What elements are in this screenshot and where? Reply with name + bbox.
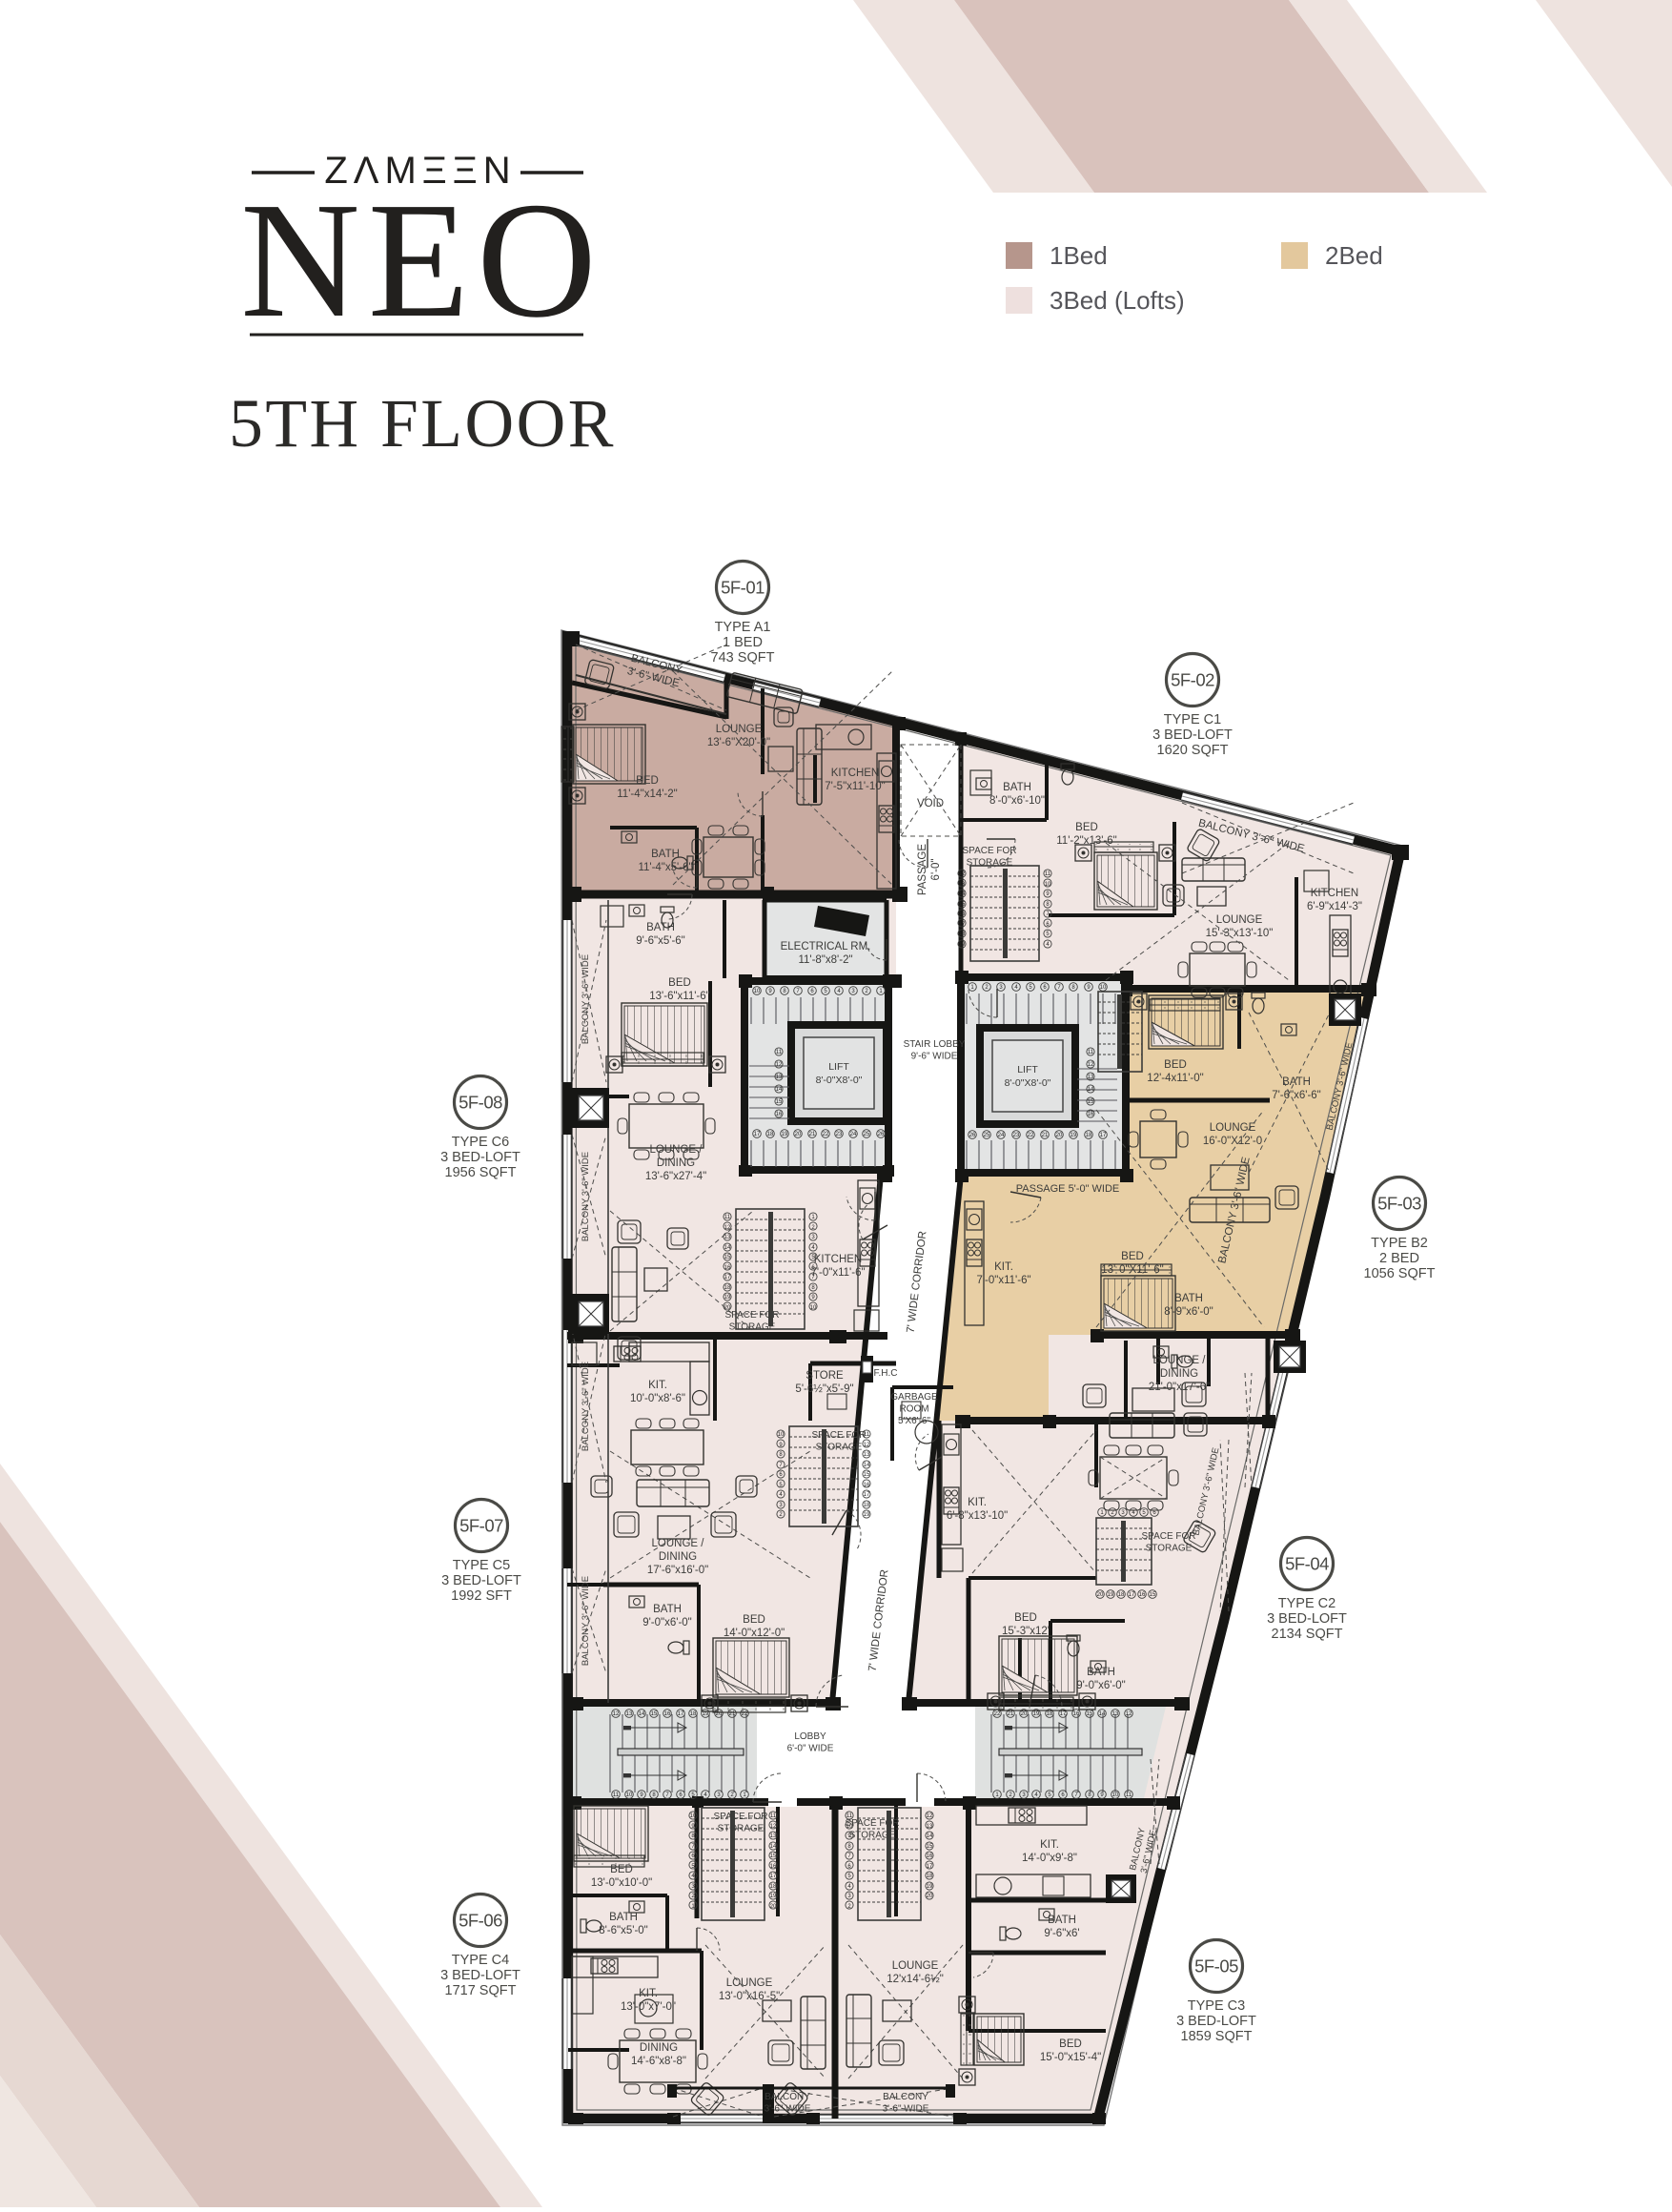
svg-text:3 BED-LOFT: 3 BED-LOFT [1176, 2014, 1256, 2029]
svg-text:8'-0"x6'-10": 8'-0"x6'-10" [989, 795, 1045, 807]
svg-text:15'-3"x13'-10": 15'-3"x13'-10" [1206, 928, 1274, 939]
svg-text:11: 11 [1045, 871, 1051, 877]
svg-text:7'-6"x6'-6": 7'-6"x6'-6" [1272, 1090, 1321, 1101]
svg-text:10: 10 [626, 1792, 633, 1798]
svg-text:24: 24 [850, 1132, 857, 1137]
svg-text:TYPE C6: TYPE C6 [452, 1135, 509, 1150]
svg-text:DINING: DINING [659, 1551, 697, 1563]
svg-text:13: 13 [1112, 1711, 1119, 1717]
svg-text:16: 16 [776, 1112, 783, 1117]
svg-text:16: 16 [959, 911, 966, 917]
svg-text:6'-0": 6'-0" [930, 859, 942, 881]
svg-text:LOUNGE: LOUNGE [892, 1960, 939, 1972]
svg-text:15'-3"x12': 15'-3"x12' [1002, 1626, 1050, 1637]
svg-text:10: 10 [1100, 985, 1107, 991]
svg-text:17: 17 [1100, 1133, 1107, 1138]
svg-text:5F-04: 5F-04 [1285, 1554, 1329, 1574]
svg-text:BALCONY 3'-6" WIDE: BALCONY 3'-6" WIDE [581, 1576, 591, 1666]
svg-text:BED: BED [610, 1864, 633, 1875]
svg-text:12: 12 [770, 1824, 777, 1830]
svg-text:5F-05: 5F-05 [1194, 1956, 1238, 1976]
svg-text:KIT.: KIT. [648, 1380, 667, 1391]
svg-text:9'-6"x5'-6": 9'-6"x5'-6" [636, 935, 685, 947]
svg-text:17: 17 [678, 1711, 684, 1717]
svg-text:14'-6"x8'-8": 14'-6"x8'-8" [631, 2056, 686, 2067]
svg-text:3 BED-LOFT: 3 BED-LOFT [441, 1573, 521, 1588]
svg-text:STORAGE: STORAGE [1146, 1544, 1193, 1554]
svg-text:14: 14 [776, 1087, 783, 1093]
svg-text:25: 25 [984, 1133, 990, 1138]
svg-text:9'-6" WIDE: 9'-6" WIDE [911, 1052, 958, 1062]
svg-text:6'-0" WIDE: 6'-0" WIDE [787, 1744, 834, 1754]
svg-text:21: 21 [1042, 1133, 1049, 1138]
svg-text:BED: BED [1121, 1251, 1144, 1262]
svg-text:14: 14 [1099, 1711, 1106, 1717]
svg-text:18: 18 [724, 1285, 731, 1291]
svg-text:BATH: BATH [1087, 1667, 1115, 1678]
svg-text:15: 15 [1087, 1711, 1093, 1717]
svg-text:8'-0"X8'-0": 8'-0"X8'-0" [816, 1075, 863, 1086]
svg-text:PASSAGE: PASSAGE [917, 844, 928, 895]
svg-text:22: 22 [823, 1132, 829, 1137]
svg-text:12: 12 [1088, 1062, 1094, 1068]
svg-text:13: 13 [626, 1711, 633, 1717]
svg-text:14: 14 [927, 1833, 933, 1839]
svg-text:DINING: DINING [640, 2042, 678, 2054]
svg-text:10: 10 [810, 1305, 817, 1311]
svg-text:BALCONY 3'-6" WIDE: BALCONY 3'-6" WIDE [581, 1152, 591, 1241]
svg-text:KIT.: KIT. [639, 1988, 658, 1999]
svg-text:16: 16 [1073, 1711, 1080, 1717]
svg-text:TYPE C1: TYPE C1 [1164, 712, 1221, 727]
svg-text:13'-0"x10'-0": 13'-0"x10'-0" [591, 1877, 652, 1889]
svg-text:20: 20 [770, 1904, 777, 1910]
svg-text:3 BED-LOFT: 3 BED-LOFT [1267, 1611, 1347, 1627]
svg-text:12: 12 [613, 1711, 620, 1717]
svg-text:15: 15 [651, 1711, 658, 1717]
svg-text:BALCONY: BALCONY [765, 2092, 810, 2102]
svg-text:12: 12 [959, 871, 966, 877]
svg-text:17: 17 [1129, 1592, 1135, 1598]
svg-text:DINING: DINING [1160, 1368, 1198, 1380]
svg-text:18: 18 [927, 1874, 933, 1879]
svg-text:14: 14 [639, 1711, 645, 1717]
svg-text:KITCHEN: KITCHEN [831, 768, 879, 779]
svg-text:5'X6'-6": 5'X6'-6" [898, 1416, 931, 1426]
svg-text:13: 13 [864, 1452, 870, 1458]
svg-text:BED: BED [1075, 822, 1098, 833]
svg-text:STAIR LOBBY: STAIR LOBBY [904, 1039, 966, 1050]
svg-text:5F-01: 5F-01 [721, 578, 765, 598]
svg-text:16'-0"X12'-0: 16'-0"X12'-0 [1203, 1136, 1262, 1147]
svg-text:13'-6"x11'-6": 13'-6"x11'-6" [649, 991, 710, 1002]
svg-text:19: 19 [864, 1512, 870, 1518]
svg-text:1992 SFT: 1992 SFT [451, 1588, 512, 1604]
svg-text:15: 15 [927, 1844, 933, 1850]
svg-text:1717 SQFT: 1717 SQFT [445, 1983, 517, 1998]
svg-text:15: 15 [864, 1472, 870, 1478]
svg-text:15'-0"x15'-4": 15'-0"x15'-4" [1040, 2052, 1101, 2063]
svg-text:LOUNGE: LOUNGE [1216, 914, 1263, 926]
svg-text:16: 16 [864, 1483, 870, 1488]
svg-text:11: 11 [613, 1792, 620, 1798]
svg-text:20: 20 [795, 1132, 802, 1137]
svg-text:BATH: BATH [646, 922, 675, 933]
svg-text:7'-5"x11'-10": 7'-5"x11'-10" [825, 781, 886, 792]
svg-text:10: 10 [754, 989, 761, 994]
svg-text:14: 14 [724, 1245, 731, 1251]
svg-text:19: 19 [703, 1711, 709, 1717]
svg-text:2 BED: 2 BED [1379, 1251, 1419, 1266]
svg-text:11: 11 [770, 1813, 777, 1819]
svg-text:17: 17 [1060, 1711, 1067, 1717]
svg-text:18: 18 [959, 932, 966, 937]
svg-text:15: 15 [959, 902, 966, 908]
svg-text:LOUNGE /: LOUNGE / [1153, 1355, 1207, 1366]
svg-text:9'-6"x6': 9'-6"x6' [1044, 1928, 1079, 1939]
svg-text:KIT.: KIT. [994, 1261, 1013, 1273]
svg-text:11'-4"x14'-2": 11'-4"x14'-2" [617, 789, 678, 800]
svg-text:NEO: NEO [240, 168, 604, 352]
svg-text:23: 23 [836, 1132, 843, 1137]
svg-text:17: 17 [959, 922, 966, 928]
svg-text:3 BED-LOFT: 3 BED-LOFT [440, 1150, 520, 1165]
svg-text:LOUNGE /: LOUNGE / [652, 1538, 705, 1549]
svg-text:7'-0"x11'-6": 7'-0"x11'-6" [976, 1275, 1030, 1286]
svg-text:22: 22 [994, 1711, 1001, 1717]
svg-text:7'-0"x11'-6": 7'-0"x11'-6" [810, 1267, 865, 1279]
svg-text:GARBAGE: GARBAGE [890, 1392, 938, 1403]
svg-text:20: 20 [927, 1894, 933, 1899]
svg-text:5F-03: 5F-03 [1377, 1194, 1421, 1214]
svg-text:13'-6"X20'-0": 13'-6"X20'-0" [707, 737, 770, 748]
svg-text:2134 SQFT: 2134 SQFT [1272, 1627, 1343, 1642]
svg-text:23: 23 [1013, 1133, 1020, 1138]
svg-text:ROOM: ROOM [899, 1404, 928, 1415]
svg-text:5F-07: 5F-07 [459, 1516, 503, 1536]
svg-text:11'-4"x5'-6": 11'-4"x5'-6" [638, 862, 692, 873]
svg-text:18: 18 [1047, 1711, 1053, 1717]
svg-text:17: 17 [724, 1275, 731, 1280]
svg-text:12'x14'-6½": 12'x14'-6½" [887, 1974, 944, 1985]
svg-text:6'-8"x13'-10": 6'-8"x13'-10" [947, 1510, 1008, 1522]
svg-text:14'-0"x9'-8": 14'-0"x9'-8" [1022, 1853, 1077, 1864]
svg-text:12'-4x11'-0": 12'-4x11'-0" [1147, 1073, 1203, 1084]
svg-text:8'-0"X8'-0": 8'-0"X8'-0" [1005, 1077, 1051, 1089]
svg-text:10'-0"x8'-6": 10'-0"x8'-6" [630, 1393, 685, 1404]
svg-text:25: 25 [864, 1132, 870, 1137]
svg-text:9'-0"x6'-0": 9'-0"x6'-0" [642, 1617, 692, 1628]
svg-text:19: 19 [724, 1295, 731, 1301]
svg-text:14: 14 [959, 891, 966, 897]
svg-text:BATH: BATH [1048, 1915, 1076, 1926]
svg-text:KITCHEN: KITCHEN [1311, 888, 1358, 899]
svg-text:26: 26 [969, 1133, 976, 1138]
svg-text:8'-9"x6'-0": 8'-9"x6'-0" [1164, 1306, 1213, 1318]
svg-text:12: 12 [776, 1062, 783, 1068]
svg-text:SPACE FOR: SPACE FOR [811, 1430, 866, 1441]
svg-text:LOBBY: LOBBY [794, 1731, 826, 1742]
svg-text:TYPE C3: TYPE C3 [1188, 1998, 1245, 2014]
svg-text:KIT.: KIT. [968, 1497, 987, 1508]
svg-text:TYPE C5: TYPE C5 [453, 1558, 510, 1573]
svg-text:17: 17 [754, 1132, 761, 1137]
svg-text:22: 22 [1028, 1133, 1034, 1138]
svg-text:17: 17 [864, 1492, 870, 1498]
svg-text:LOUNGE /: LOUNGE / [650, 1144, 703, 1156]
svg-text:13'-0"X11'-6": 13'-0"X11'-6" [1101, 1264, 1163, 1276]
svg-text:BATH: BATH [1003, 782, 1031, 793]
svg-text:TYPE A1: TYPE A1 [715, 620, 771, 635]
svg-text:5F-08: 5F-08 [459, 1093, 502, 1113]
svg-text:BATH: BATH [609, 1912, 638, 1923]
svg-text:SPACE FOR: SPACE FOR [845, 1818, 899, 1829]
svg-text:14: 14 [1088, 1087, 1094, 1093]
svg-text:17'-6"x16'-0": 17'-6"x16'-0" [647, 1565, 708, 1576]
svg-text:16: 16 [1088, 1112, 1094, 1117]
svg-text:11: 11 [1088, 1050, 1094, 1055]
svg-text:14: 14 [770, 1844, 777, 1850]
svg-text:15: 15 [724, 1255, 731, 1260]
svg-text:BED: BED [1014, 1612, 1037, 1624]
svg-text:21'-0"x17'-6": 21'-0"x17'-6" [1149, 1382, 1210, 1393]
svg-text:14: 14 [864, 1463, 870, 1468]
svg-text:11: 11 [1126, 1792, 1132, 1798]
svg-text:15: 15 [776, 1099, 783, 1105]
svg-text:PASSAGE 5'-0" WIDE: PASSAGE 5'-0" WIDE [1016, 1183, 1120, 1195]
svg-text:BALCONY 3'-6" WIDE: BALCONY 3'-6" WIDE [581, 954, 591, 1044]
svg-text:11'-2"x13'-6": 11'-2"x13'-6" [1056, 835, 1117, 847]
svg-text:743 SQFT: 743 SQFT [711, 650, 775, 666]
svg-text:1956 SQFT: 1956 SQFT [445, 1165, 517, 1180]
svg-text:19: 19 [959, 942, 966, 948]
svg-text:F.H.C: F.H.C [874, 1368, 898, 1379]
svg-text:LIFT: LIFT [828, 1061, 849, 1073]
svg-text:STORAGE: STORAGE [729, 1322, 776, 1333]
svg-text:19: 19 [770, 1894, 777, 1899]
svg-text:KITCHEN: KITCHEN [814, 1254, 862, 1265]
svg-text:19: 19 [1070, 1133, 1077, 1138]
svg-text:BED: BED [1164, 1059, 1187, 1071]
svg-text:3 BED-LOFT: 3 BED-LOFT [440, 1968, 520, 1983]
svg-text:3'-6" WIDE: 3'-6" WIDE [883, 2104, 929, 2115]
svg-text:17: 17 [770, 1874, 777, 1879]
svg-text:18: 18 [767, 1132, 774, 1137]
svg-text:13: 13 [1088, 1075, 1094, 1080]
svg-text:13: 13 [724, 1235, 731, 1240]
svg-text:KIT.: KIT. [1040, 1839, 1059, 1851]
svg-text:SPACE FOR: SPACE FOR [1141, 1531, 1195, 1542]
svg-text:12: 12 [1126, 1711, 1132, 1717]
svg-text:SPACE FOR: SPACE FOR [962, 846, 1016, 856]
svg-text:BATH: BATH [653, 1604, 682, 1615]
svg-text:5'-6½"x5'-9": 5'-6½"x5'-9" [795, 1383, 853, 1395]
svg-text:21: 21 [1008, 1711, 1014, 1717]
svg-text:18: 18 [1118, 1592, 1125, 1598]
svg-text:15: 15 [1150, 1592, 1156, 1598]
svg-text:BALCONY: BALCONY [883, 2092, 928, 2102]
svg-text:1056 SQFT: 1056 SQFT [1364, 1266, 1436, 1281]
svg-text:LOUNGE: LOUNGE [726, 1977, 773, 1989]
svg-text:5F-02: 5F-02 [1171, 670, 1214, 690]
svg-text:19: 19 [1033, 1711, 1040, 1717]
svg-text:12: 12 [864, 1443, 870, 1448]
svg-text:13: 13 [927, 1824, 933, 1830]
svg-text:11: 11 [776, 1050, 783, 1055]
svg-text:5TH FLOOR: 5TH FLOOR [229, 386, 616, 461]
svg-text:19: 19 [782, 1132, 788, 1137]
svg-text:21: 21 [809, 1132, 816, 1137]
svg-text:9'-0"x6'-0": 9'-0"x6'-0" [1076, 1680, 1126, 1691]
svg-text:BED: BED [743, 1614, 765, 1626]
svg-text:12: 12 [927, 1813, 933, 1819]
svg-text:13: 13 [959, 882, 966, 888]
svg-text:16: 16 [1139, 1592, 1146, 1598]
svg-text:10: 10 [690, 1813, 697, 1819]
svg-text:TYPE C4: TYPE C4 [452, 1953, 509, 1968]
svg-text:18: 18 [770, 1884, 777, 1890]
svg-text:LOUNGE: LOUNGE [1210, 1122, 1256, 1134]
svg-text:13'-6"x27'-4": 13'-6"x27'-4" [645, 1171, 706, 1182]
svg-text:15: 15 [1088, 1099, 1094, 1105]
svg-text:STORAGE: STORAGE [816, 1443, 863, 1453]
svg-text:13'-0"x7'-0": 13'-0"x7'-0" [621, 2001, 676, 2013]
svg-text:13: 13 [770, 1833, 777, 1839]
svg-text:11: 11 [724, 1215, 731, 1220]
svg-text:16: 16 [664, 1711, 671, 1717]
svg-text:13: 13 [776, 1075, 783, 1080]
svg-text:24: 24 [998, 1133, 1005, 1138]
svg-text:1Bed: 1Bed [1050, 241, 1108, 270]
svg-text:DINING: DINING [657, 1157, 695, 1169]
svg-text:TYPE B2: TYPE B2 [1371, 1236, 1428, 1251]
svg-text:20: 20 [1021, 1711, 1028, 1717]
svg-text:STORAGE: STORAGE [718, 1824, 765, 1834]
svg-text:BATH: BATH [1282, 1076, 1311, 1088]
svg-text:16: 16 [724, 1265, 731, 1271]
svg-text:11'-8"x8'-2": 11'-8"x8'-2" [798, 954, 852, 966]
svg-text:16: 16 [927, 1854, 933, 1859]
svg-text:18: 18 [1086, 1133, 1092, 1138]
svg-text:STORAGE: STORAGE [967, 858, 1013, 869]
svg-text:26: 26 [878, 1132, 885, 1137]
svg-text:13'-0"x16'-5": 13'-0"x16'-5" [719, 1991, 780, 2002]
svg-text:8'-6"x5'-0": 8'-6"x5'-0" [599, 1925, 648, 1936]
svg-text:BED: BED [1059, 2038, 1082, 2050]
svg-text:20: 20 [1097, 1592, 1104, 1598]
svg-text:TYPE C2: TYPE C2 [1278, 1596, 1336, 1611]
svg-text:18: 18 [864, 1503, 870, 1508]
svg-text:BATH: BATH [1174, 1293, 1203, 1304]
svg-text:17: 17 [927, 1864, 933, 1870]
svg-text:10: 10 [778, 1432, 785, 1438]
svg-text:BED: BED [636, 775, 659, 787]
svg-text:1620 SQFT: 1620 SQFT [1157, 743, 1229, 758]
svg-text:STORE: STORE [805, 1370, 844, 1382]
svg-text:ELECTRICAL RM.: ELECTRICAL RM. [781, 941, 871, 952]
svg-text:SPACE FOR: SPACE FOR [713, 1812, 767, 1822]
svg-text:15: 15 [770, 1854, 777, 1859]
svg-text:19: 19 [927, 1884, 933, 1890]
svg-text:LIFT: LIFT [1017, 1064, 1038, 1075]
svg-text:STORAGE: STORAGE [849, 1831, 896, 1841]
svg-text:3Bed (Lofts): 3Bed (Lofts) [1050, 286, 1185, 315]
svg-text:BED: BED [668, 977, 691, 989]
svg-text:BALCONY 3'-6" WIDE: BALCONY 3'-6" WIDE [581, 1362, 591, 1451]
svg-text:18: 18 [690, 1711, 697, 1717]
svg-text:1 BED: 1 BED [723, 635, 763, 650]
svg-text:VOID: VOID [917, 798, 944, 809]
svg-text:10: 10 [1045, 882, 1051, 888]
svg-text:2Bed: 2Bed [1325, 241, 1383, 270]
svg-text:14'-0"x12'-0": 14'-0"x12'-0" [724, 1628, 785, 1639]
svg-text:LOUNGE: LOUNGE [716, 724, 763, 735]
svg-text:5F-06: 5F-06 [459, 1911, 502, 1931]
svg-text:16: 16 [770, 1864, 777, 1870]
svg-text:20: 20 [1056, 1133, 1063, 1138]
svg-text:1859 SQFT: 1859 SQFT [1181, 2029, 1253, 2044]
svg-text:3 BED-LOFT: 3 BED-LOFT [1152, 727, 1233, 743]
svg-text:3'-6" WIDE: 3'-6" WIDE [765, 2104, 811, 2115]
svg-text:BATH: BATH [651, 849, 680, 860]
svg-text:6'-9"x14'-3": 6'-9"x14'-3" [1307, 901, 1362, 912]
svg-text:SPACE FOR: SPACE FOR [724, 1310, 779, 1321]
svg-text:19: 19 [1108, 1592, 1114, 1598]
svg-text:10: 10 [1112, 1792, 1119, 1798]
